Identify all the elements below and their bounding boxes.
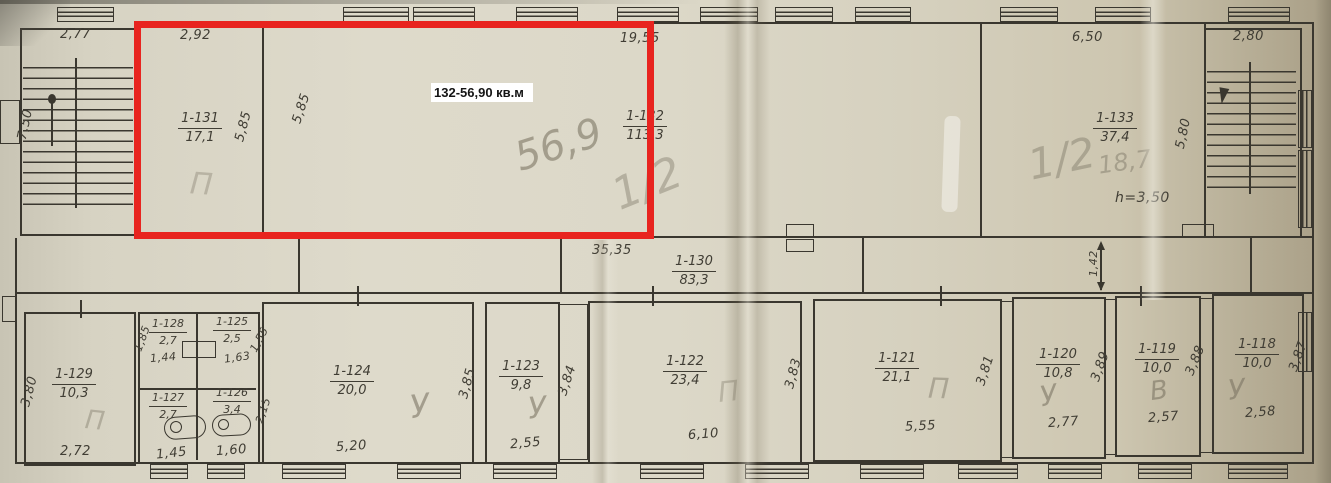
scanned-floor-plan-photo: 2,77 7,50 2,92 19,55 6,50 2,80 5,85 5,85…: [0, 0, 1331, 483]
dim-r127-bottom: 1,45: [155, 445, 187, 461]
dim-r129-bottom: 2,72: [60, 445, 91, 458]
shaft-119-118: [1199, 298, 1213, 453]
paper-scratch: [941, 116, 960, 212]
window-symbol: [1000, 7, 1058, 22]
stair-arrow-start: [48, 94, 56, 104]
pencil-mark-122: П: [717, 377, 741, 407]
room-128-area: 2,7: [146, 333, 190, 347]
window-symbol: [150, 464, 188, 479]
dim-r123-bottom: 2,55: [509, 436, 541, 452]
photo-right-edge: [1315, 0, 1331, 483]
window-symbol: [493, 464, 557, 479]
pencil-133-area: 18,7: [1097, 146, 1153, 177]
dim-r121-bottom: 5,55: [905, 419, 937, 434]
pilaster: [786, 224, 814, 237]
room-133-number: 1-133: [1093, 112, 1137, 129]
room-126-number: 1-126: [213, 387, 251, 402]
room-118-number: 1-118: [1235, 338, 1279, 355]
toilet-fixture-detail: [170, 421, 182, 433]
stair-arrow-line: [51, 102, 53, 146]
room-127-number: 1-127: [149, 392, 187, 407]
pencil-mark-123: У: [527, 393, 548, 424]
dim-arrow-down: [1097, 282, 1105, 291]
staircase-left-divider: [75, 58, 77, 208]
window-symbol: [860, 464, 924, 479]
room-130-area: 83,3: [668, 272, 720, 288]
staircase-left: [20, 28, 138, 236]
pencil-mark-129: П: [84, 407, 106, 435]
room-label-120: 1-120 10,8: [1029, 348, 1087, 382]
window-symbol: [1095, 7, 1151, 22]
dim-r119-bottom: 2,57: [1148, 410, 1180, 425]
dim-r122-bottom: 6,10: [688, 427, 720, 442]
corridor-left-end-wall: [15, 238, 17, 294]
room-125-area: 2,5: [210, 331, 254, 345]
dim-corridor-length: 35,35: [592, 244, 632, 257]
window-symbol: [57, 7, 114, 22]
room-label-122: 1-122 23,4: [655, 355, 715, 389]
dim-r118-bottom: 2,58: [1245, 405, 1277, 420]
window-symbol: [397, 464, 461, 479]
window-symbol: [413, 7, 475, 22]
room-121-number: 1-121: [875, 352, 919, 369]
room-124-area: 20,0: [322, 382, 382, 398]
room-label-121: 1-121 21,1: [867, 352, 927, 386]
room-label-130: 1-130 83,3: [668, 255, 720, 289]
corridor-tick: [560, 238, 562, 292]
room-label-126: 1-126 3,4: [210, 387, 254, 416]
room-130-number: 1-130: [672, 255, 716, 272]
dim-ceiling-height: h=3,50: [1115, 191, 1170, 205]
corridor-bottom-wall: [15, 292, 1314, 294]
window-symbol: [207, 464, 245, 479]
dim-r128-bottom: 1,44: [150, 351, 177, 364]
room-122-number: 1-122: [663, 355, 707, 372]
window-symbol: [1048, 464, 1102, 479]
photo-top-edge: [0, 0, 700, 4]
room-label-118: 1-118 10,0: [1228, 338, 1286, 372]
window-symbol: [855, 7, 911, 22]
room-120-area: 10,8: [1029, 365, 1087, 381]
window-symbol: [1138, 464, 1192, 479]
corridor-tick: [298, 238, 300, 292]
room-129-number: 1-129: [52, 368, 96, 385]
dim-stair-left-top: 2,77: [60, 28, 91, 41]
red-highlight-box: [134, 21, 654, 239]
window-symbol: [1298, 90, 1312, 148]
window-symbol: [958, 464, 1018, 479]
window-symbol: [745, 464, 809, 479]
window-symbol: [1228, 464, 1288, 479]
room-121-area: 21,1: [867, 369, 927, 385]
staircase-right: [1204, 28, 1302, 238]
dim-arrow-up: [1097, 241, 1105, 250]
room-label-125: 1-125 2,5: [210, 316, 254, 345]
room-label-129: 1-129 10,3: [45, 368, 103, 402]
room-133-area: 37,4: [1085, 129, 1145, 145]
room-122-area: 23,4: [655, 372, 715, 388]
room-123-area: 9,8: [492, 377, 550, 393]
room-label-128: 1-128 2,7: [146, 318, 190, 347]
window-symbol: [1298, 150, 1312, 228]
room-128-number: 1-128: [149, 318, 187, 333]
dim-r125-bottom: 1,63: [223, 350, 251, 365]
wall-fragment-left: [2, 296, 17, 322]
right-outer-wall: [1312, 22, 1314, 464]
dim-r126-bottom: 1,60: [216, 443, 248, 458]
room-119-number: 1-119: [1135, 343, 1179, 360]
room-129-area: 10,3: [45, 385, 103, 401]
pencil-mark-121: П: [928, 375, 950, 404]
pilaster: [1182, 224, 1214, 238]
window-symbol: [775, 7, 833, 22]
dim-corridor-width: 1,42: [1088, 250, 1099, 277]
window-symbol: [640, 464, 704, 479]
room-label-127: 1-127 2,7: [146, 392, 190, 421]
area-annotation-label: 132-56,90 кв.м: [431, 83, 533, 102]
corridor-tick: [862, 238, 864, 292]
window-symbol: [282, 464, 346, 479]
room-120-number: 1-120: [1036, 348, 1080, 365]
window-symbol: [1228, 7, 1290, 22]
window-symbol: [700, 7, 758, 22]
dim-stair-right-top: 2,80: [1233, 30, 1264, 43]
room-127-area: 2,7: [146, 407, 190, 421]
window-symbol: [617, 7, 679, 22]
dim-r133-side: 5,80: [1174, 117, 1193, 150]
staircase-right-divider: [1249, 62, 1251, 194]
pilaster: [786, 239, 814, 252]
room-label-123: 1-123 9,8: [492, 360, 550, 394]
toilet-fixture-detail: [218, 419, 229, 430]
room-123-number: 1-123: [499, 360, 543, 377]
window-symbol: [343, 7, 409, 22]
room-125-number: 1-125: [213, 316, 251, 331]
room-126-area: 3,4: [210, 402, 254, 416]
wall-132-133: [980, 24, 982, 236]
room-118-area: 10,0: [1228, 355, 1286, 371]
room-119-area: 10,0: [1128, 360, 1186, 376]
dim-r124-bottom: 5,20: [336, 439, 368, 454]
room-124-number: 1-124: [330, 365, 374, 382]
room-label-119: 1-119 10,0: [1128, 343, 1186, 377]
room-label-133: 1-133 37,4: [1085, 112, 1145, 146]
room-label-124: 1-124 20,0: [322, 365, 382, 399]
dim-r133-top: 6,50: [1072, 31, 1103, 44]
corridor-tick: [1250, 238, 1252, 292]
pencil-mark-118: У: [1227, 375, 1247, 405]
window-symbol: [516, 7, 578, 22]
dim-r120-bottom: 2,77: [1048, 415, 1080, 430]
pencil-mark-119: В: [1148, 377, 1169, 405]
pencil-mark-124: У: [408, 389, 432, 423]
